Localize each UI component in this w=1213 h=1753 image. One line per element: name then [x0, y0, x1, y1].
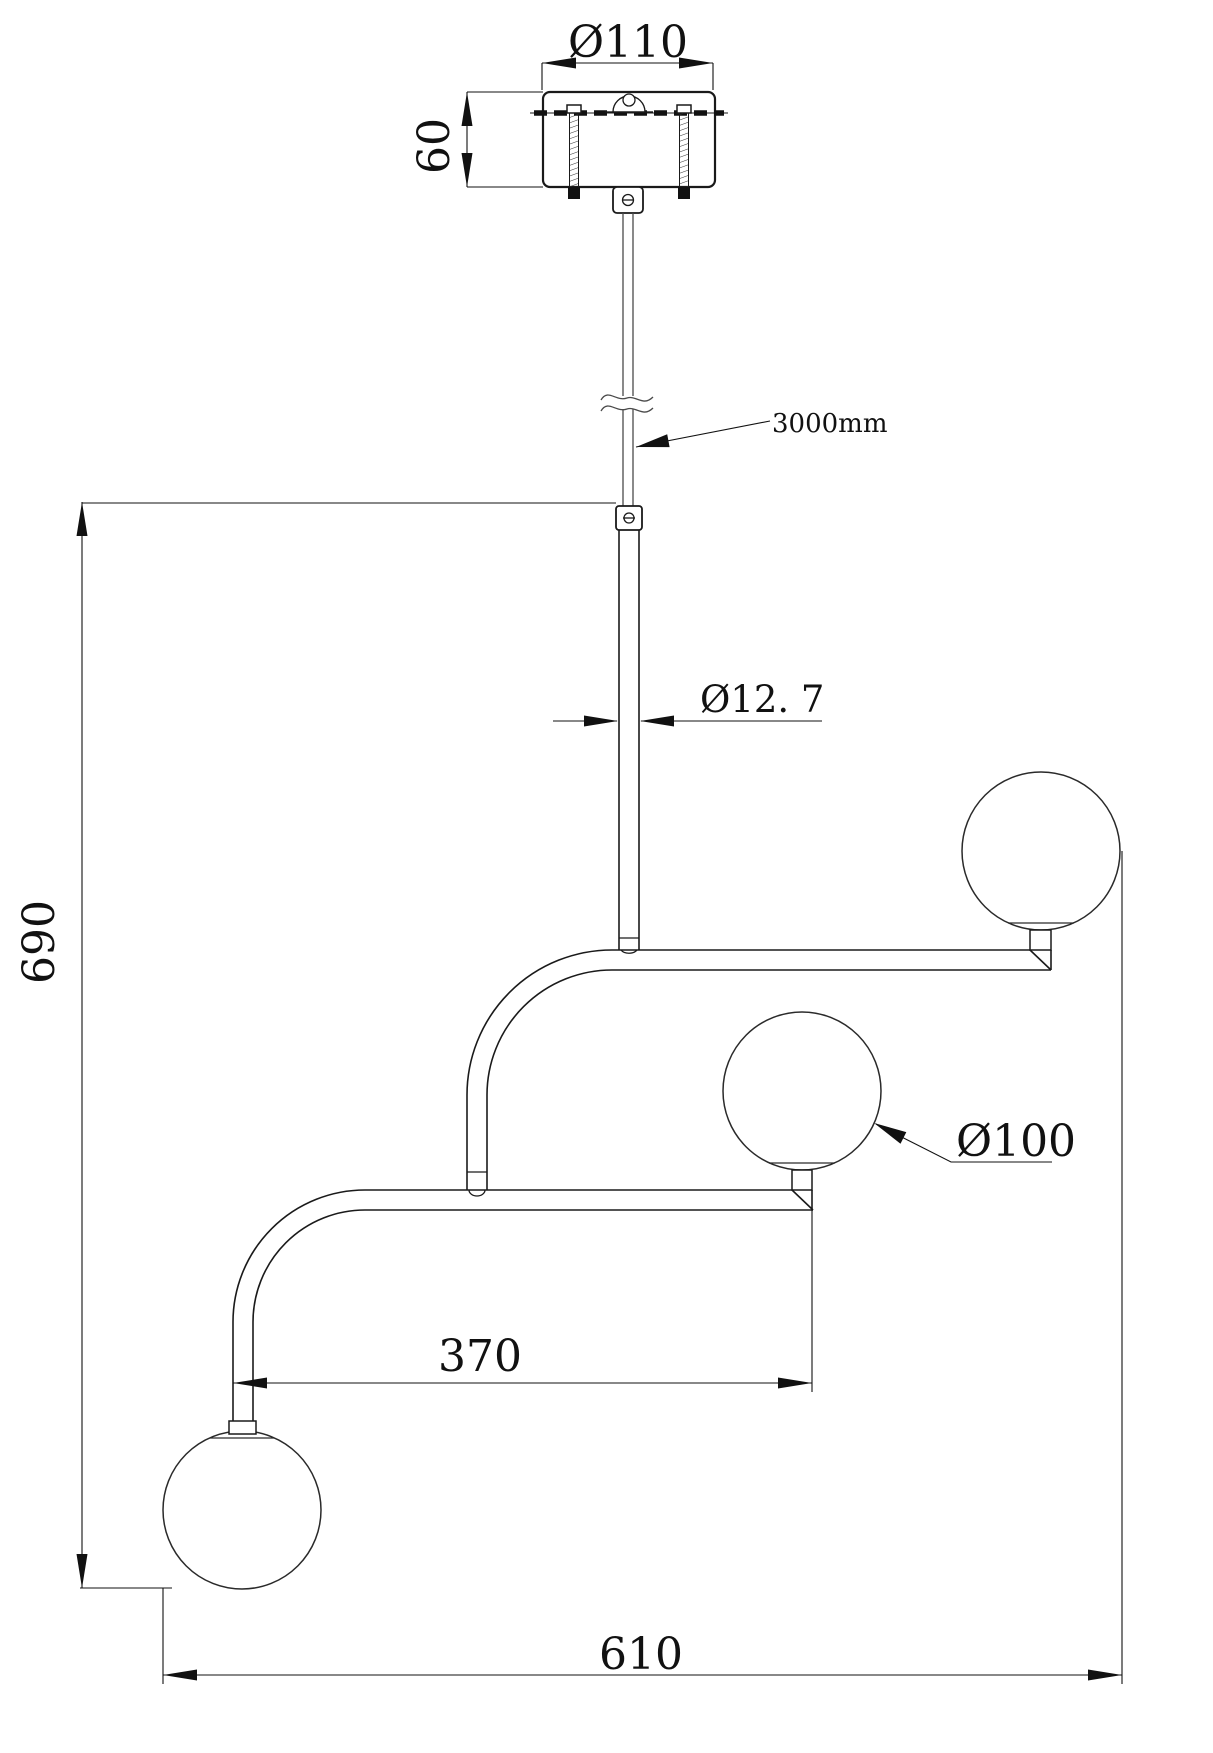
dim-label-arm-offset: 370 — [438, 1331, 522, 1382]
stem-tube — [619, 530, 639, 953]
dim-label-rod-diameter: Ø12. 7 — [700, 678, 824, 721]
dimension-rod-diameter: Ø12. 7 — [553, 678, 824, 727]
lamp-frame — [233, 530, 1051, 1421]
ceiling-canopy — [530, 92, 728, 213]
canopy-connector — [613, 187, 643, 213]
dim-label-globe-diameter: Ø100 — [956, 1116, 1076, 1167]
dim-label-overall-width: 610 — [599, 1629, 683, 1680]
mounting-screw-right — [677, 105, 691, 199]
dim-label-canopy-height: 60 — [409, 118, 460, 174]
lower-curve — [233, 1190, 365, 1421]
leader-globe-diameter: Ø100 — [874, 1116, 1076, 1167]
dimension-arm-offset: 370 — [233, 1210, 812, 1392]
globe-middle — [723, 1012, 881, 1170]
technical-drawing: Ø110 60 3000mm Ø12. 7 690 Ø100 — [0, 0, 1213, 1753]
socket-top-right — [1030, 930, 1051, 950]
socket-bottom-left — [229, 1421, 256, 1434]
globe-bottom-left — [163, 1431, 321, 1589]
globe-top-right — [962, 772, 1120, 930]
glass-globes — [163, 772, 1120, 1589]
dim-label-suspension-length: 3000mm — [772, 409, 887, 439]
suspension-rod — [601, 213, 653, 530]
leader-suspension-length: 3000mm — [636, 409, 887, 447]
dimension-canopy-diameter: Ø110 — [542, 17, 713, 90]
dimension-overall-width: 610 — [163, 851, 1122, 1684]
drawing-page: Ø110 60 3000mm Ø12. 7 690 Ø100 — [0, 0, 1213, 1753]
rod-coupler — [616, 506, 642, 530]
dimension-fixture-height: 690 — [14, 502, 616, 1588]
socket-middle — [792, 1170, 812, 1190]
hook-bracket — [605, 94, 653, 112]
dim-label-canopy-diameter: Ø110 — [568, 17, 688, 68]
break-symbol — [601, 395, 653, 412]
dim-label-fixture-height: 690 — [14, 900, 65, 984]
dimension-canopy-height: 60 — [409, 92, 543, 187]
mounting-screw-left — [567, 105, 581, 199]
middle-arm — [365, 1190, 813, 1210]
upper-arm — [612, 950, 1051, 970]
upper-curve — [467, 950, 612, 1196]
